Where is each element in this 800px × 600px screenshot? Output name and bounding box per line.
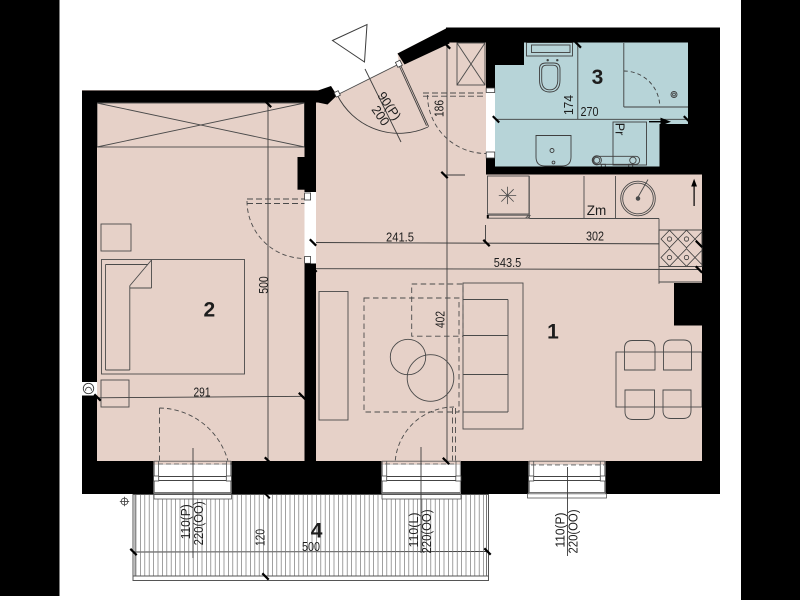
svg-text:500: 500 (302, 539, 320, 554)
svg-text:1: 1 (547, 321, 559, 344)
svg-text:291: 291 (194, 385, 211, 400)
svg-text:270: 270 (581, 104, 599, 119)
svg-text:186: 186 (432, 100, 447, 117)
svg-text:110(L): 110(L) (407, 513, 421, 548)
svg-text:Zm: Zm (587, 203, 607, 218)
svg-text:220(OO): 220(OO) (567, 510, 581, 554)
svg-text:110(P): 110(P) (554, 513, 568, 548)
svg-text:174: 174 (561, 95, 576, 115)
svg-text:110(P): 110(P) (179, 504, 193, 539)
svg-text:120: 120 (253, 529, 268, 546)
svg-text:241.5: 241.5 (386, 229, 414, 244)
svg-text:402: 402 (433, 311, 448, 328)
svg-text:3: 3 (592, 66, 604, 89)
svg-text:543.5: 543.5 (494, 255, 522, 270)
svg-text:500: 500 (256, 276, 271, 294)
svg-text:302: 302 (586, 229, 604, 244)
svg-text:2: 2 (203, 299, 215, 322)
svg-text:Pr: Pr (613, 123, 627, 136)
svg-text:220(OO): 220(OO) (192, 501, 206, 545)
svg-text:220(OO): 220(OO) (420, 510, 434, 554)
